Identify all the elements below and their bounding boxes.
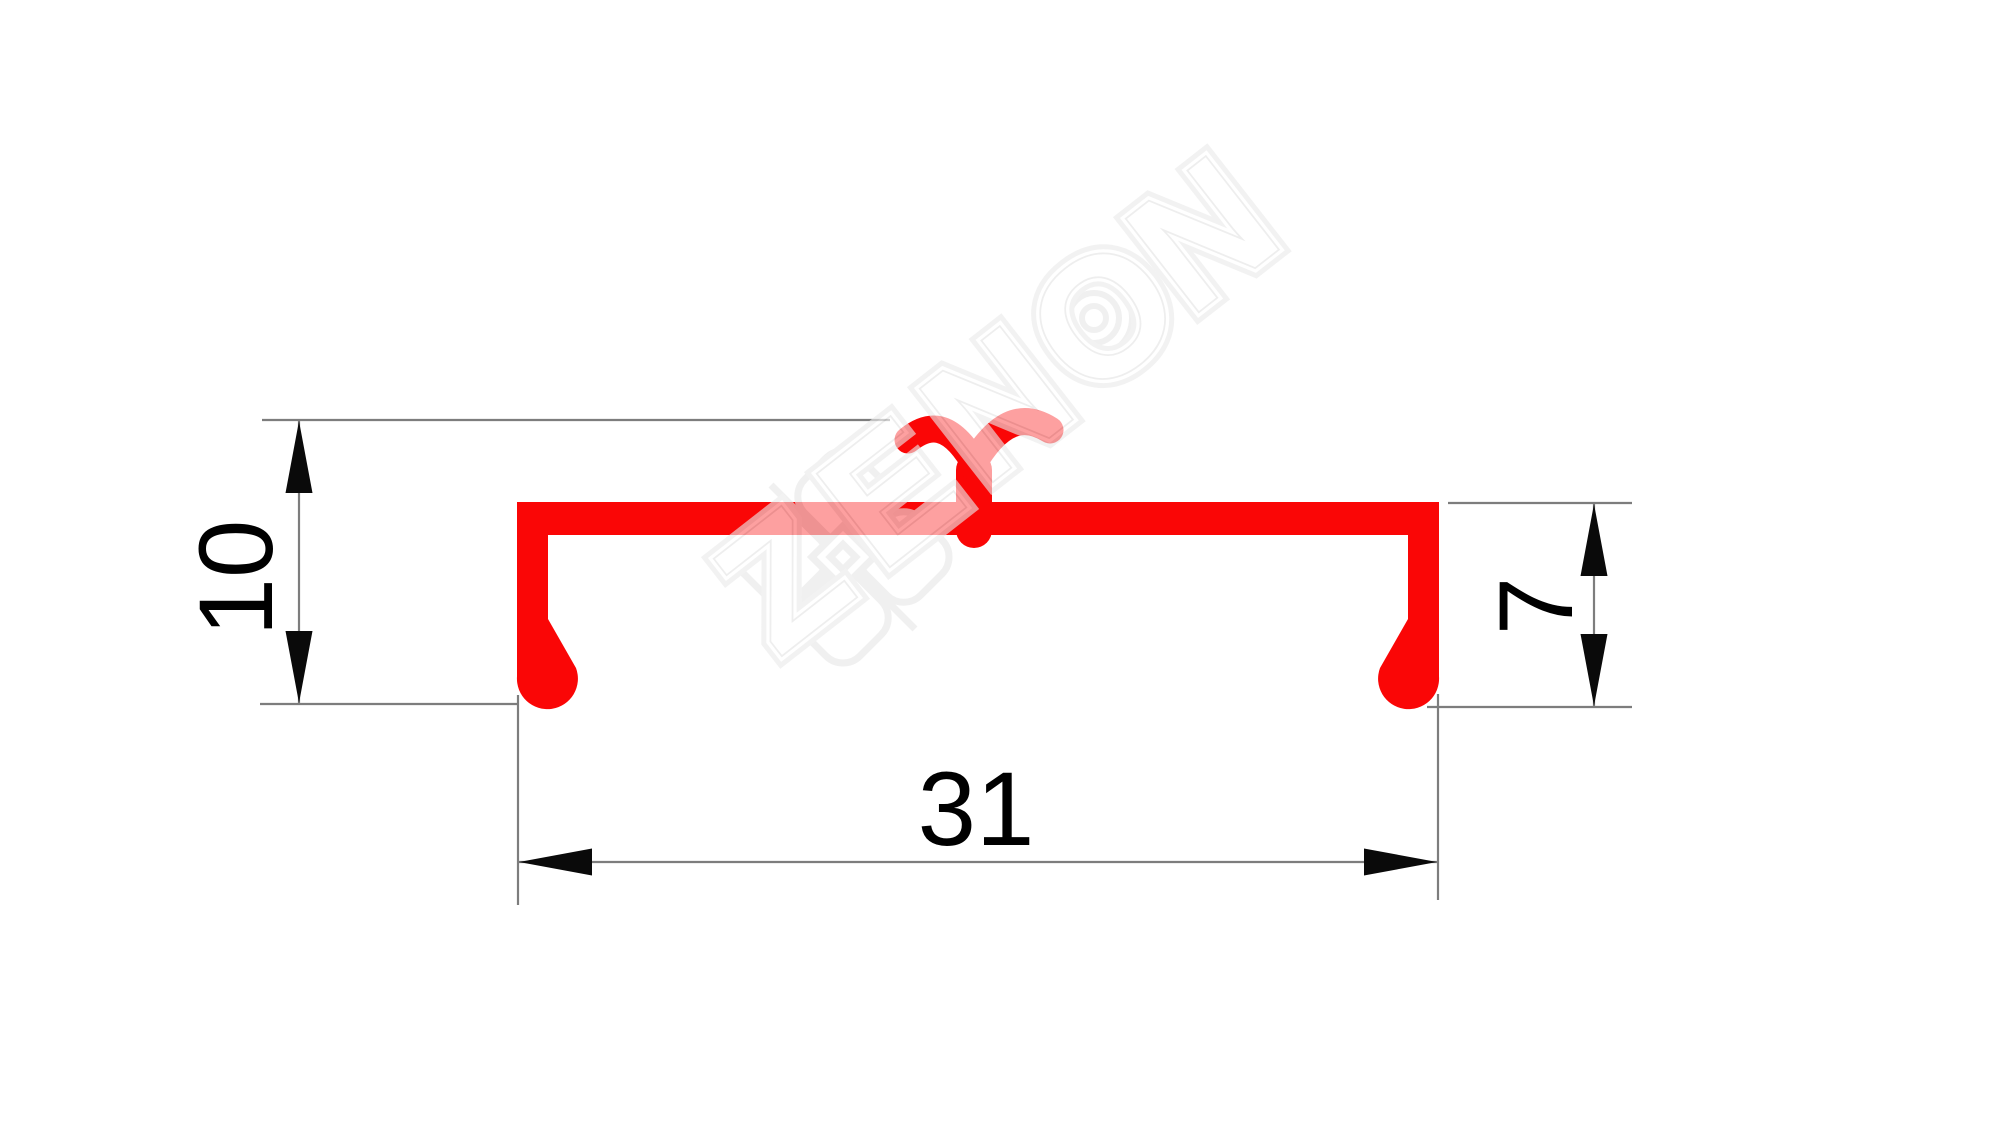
technical-drawing-page: 10 7 31 <box>0 0 2000 1131</box>
arrowhead-up-icon <box>286 421 313 493</box>
dimension-leg-height: 7 <box>1427 503 1632 707</box>
arrowhead-down-icon <box>286 631 313 703</box>
arrowhead-down-icon <box>1581 634 1608 706</box>
dimension-overall-width: 31 <box>518 694 1438 905</box>
drawing-canvas: 10 7 31 <box>0 0 2000 1131</box>
watermark-text: ZENON ZENON ZENON <box>684 122 1310 687</box>
dimension-label-overall-height: 10 <box>178 520 295 637</box>
arrowhead-right-icon <box>1364 849 1437 876</box>
dimension-label-overall-width: 31 <box>918 751 1035 868</box>
dimension-label-leg-height: 7 <box>1478 577 1595 635</box>
arrowhead-up-icon <box>1581 504 1608 576</box>
arrowhead-left-icon <box>519 849 592 876</box>
svg-text:ZENON: ZENON <box>684 122 1310 687</box>
watermark-group: ZENON ZENON ZENON <box>684 122 1310 687</box>
